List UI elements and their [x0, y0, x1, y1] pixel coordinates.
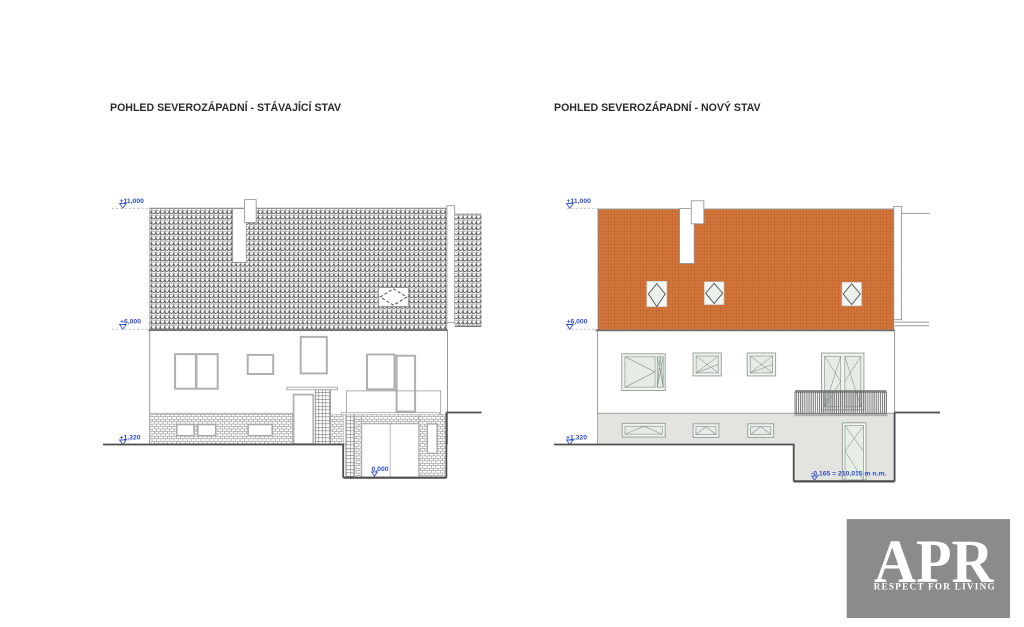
svg-text:POHLED SEVEROZÁPADNÍ - STÁVAJÍ: POHLED SEVEROZÁPADNÍ - STÁVAJÍCÍ STAV [110, 101, 341, 114]
svg-text:-0,165 = 210,015 m n.m.: -0,165 = 210,015 m n.m. [811, 470, 886, 477]
svg-text:RESPECT FOR LIVING: RESPECT FOR LIVING [874, 581, 995, 591]
svg-text:POHLED SEVEROZÁPADNÍ - NOVÝ ST: POHLED SEVEROZÁPADNÍ - NOVÝ STAV [554, 101, 761, 114]
